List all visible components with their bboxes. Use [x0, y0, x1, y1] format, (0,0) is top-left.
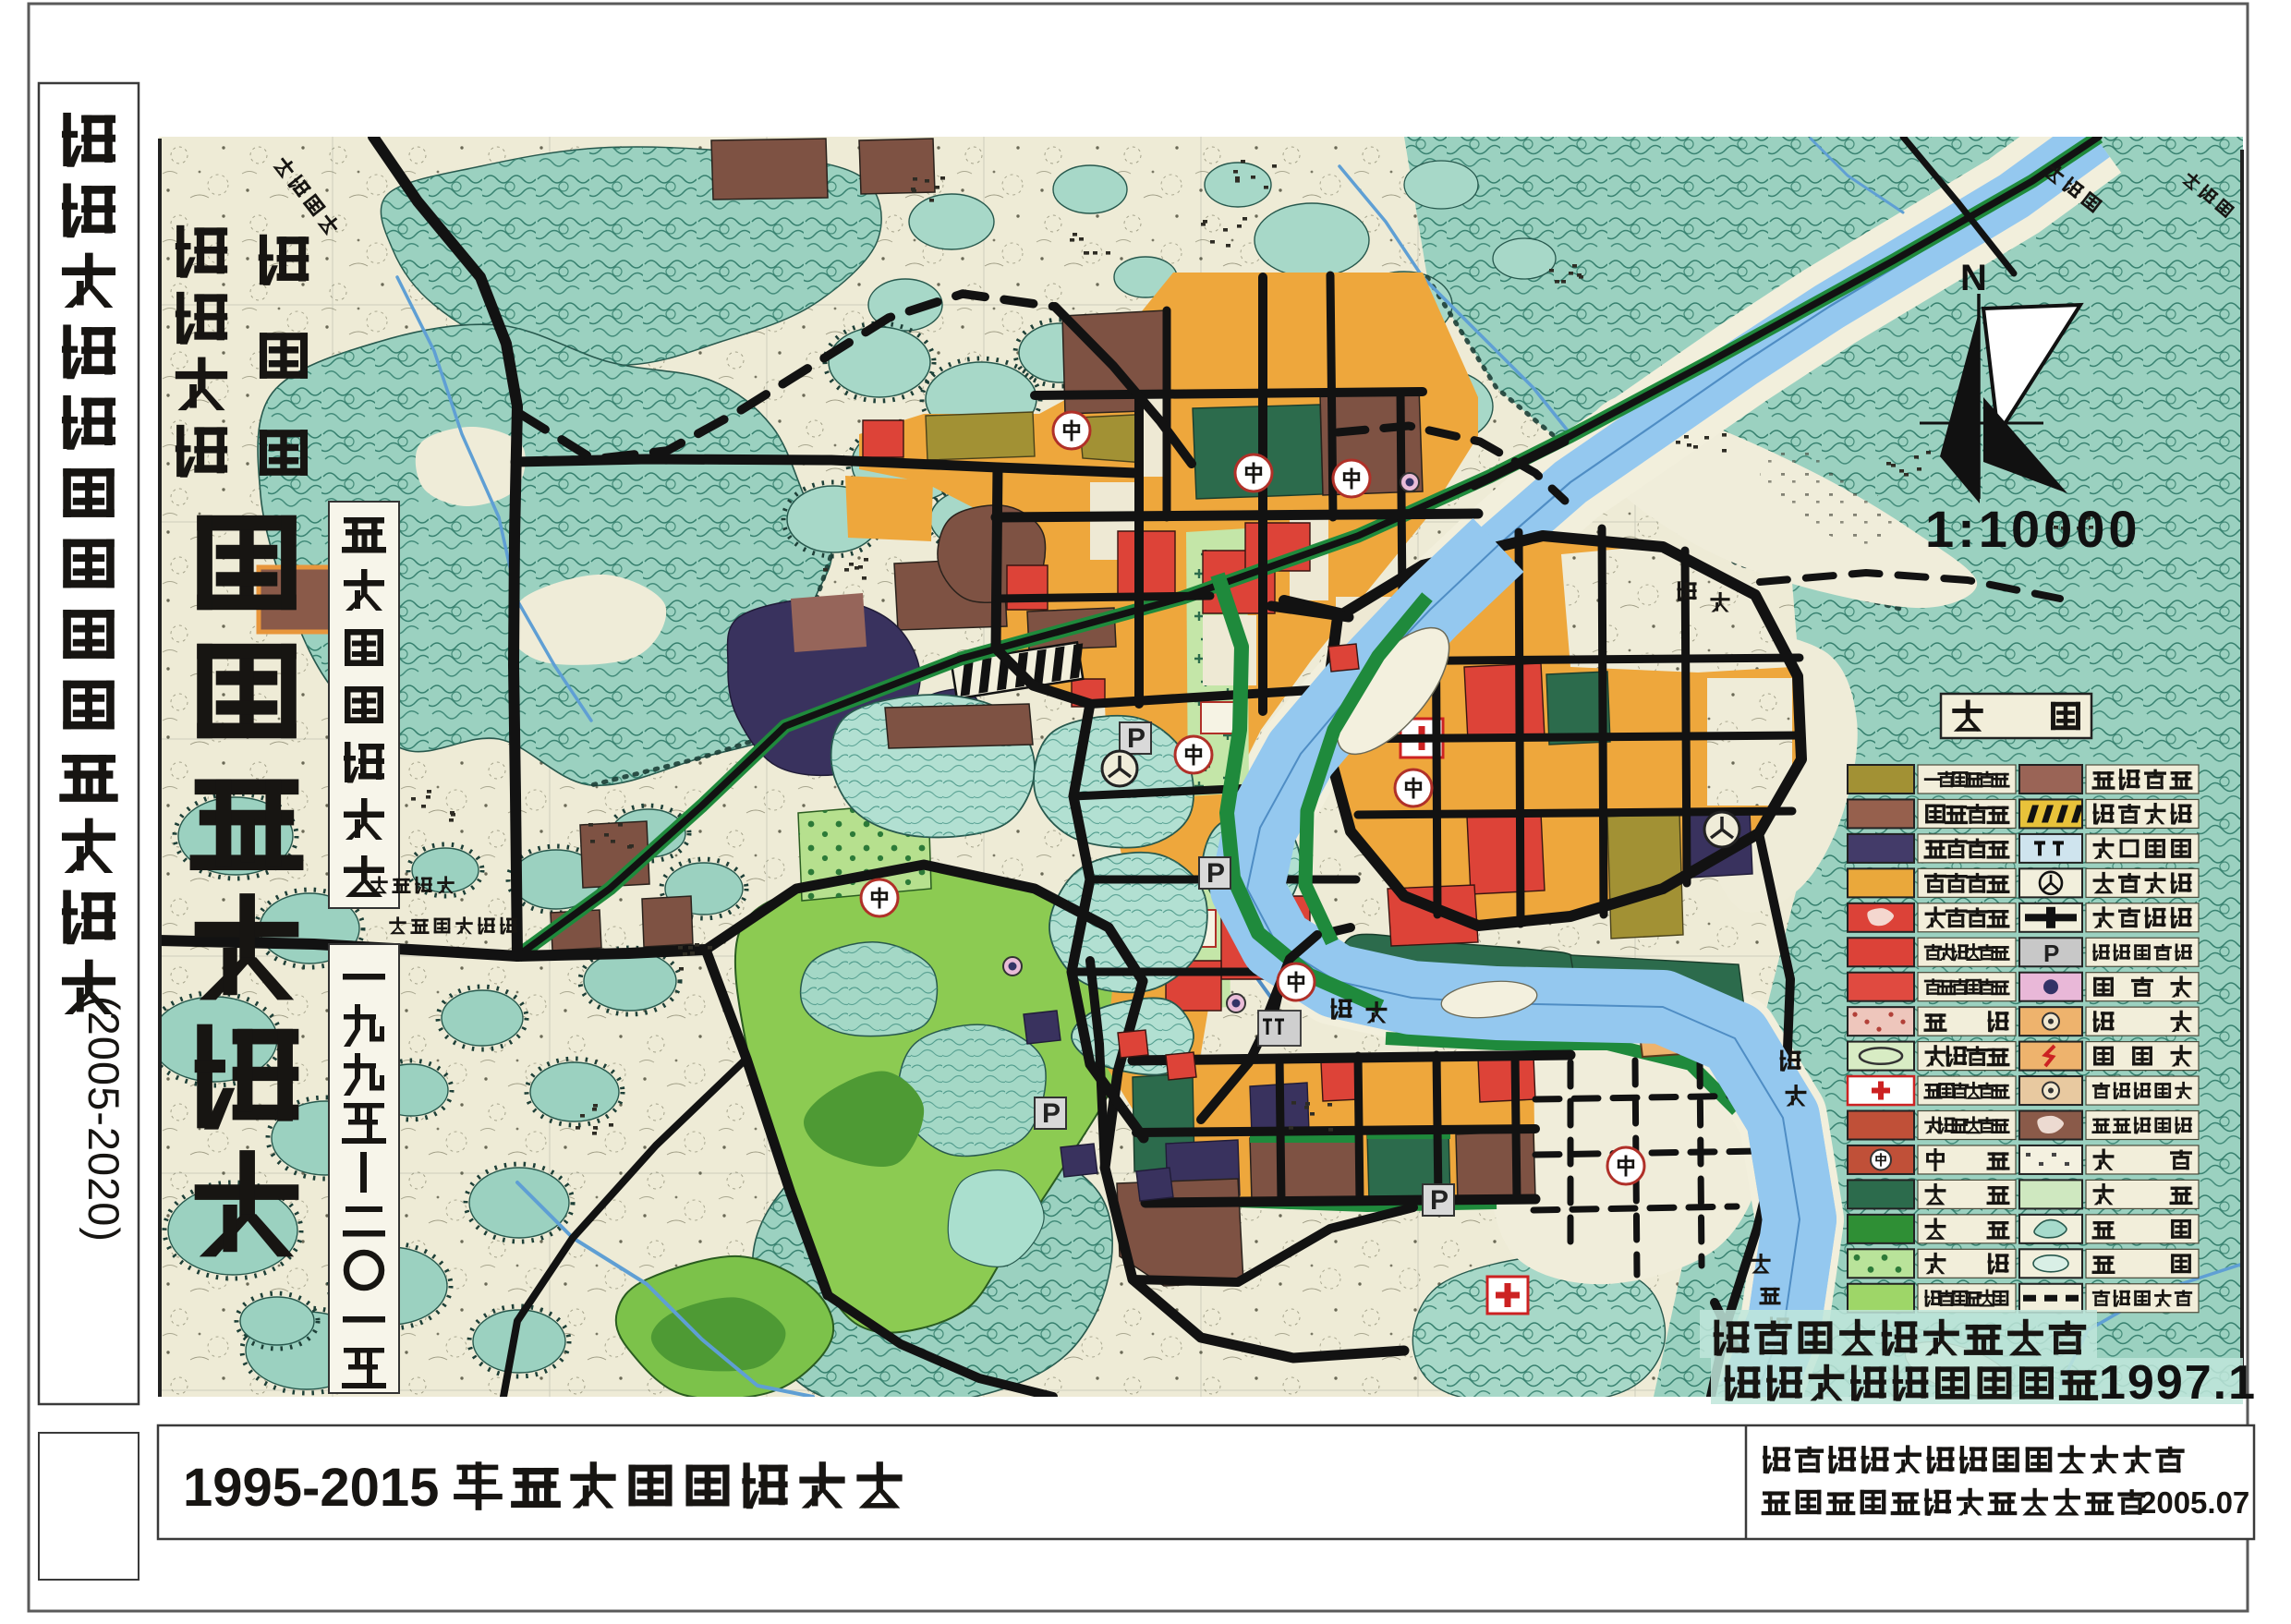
svg-text:2005.07: 2005.07 — [2139, 1485, 2249, 1520]
svg-text:1997.1: 1997.1 — [2099, 1356, 2257, 1410]
svg-text:(2005-2020): (2005-2020) — [79, 996, 128, 1242]
svg-text:P: P — [1127, 723, 1145, 754]
svg-text:P: P — [1042, 1098, 1061, 1129]
svg-text:N: N — [1960, 258, 1987, 298]
svg-text:1995-2015: 1995-2015 — [183, 1458, 439, 1518]
svg-text:P: P — [1430, 1185, 1449, 1216]
svg-text:1:10000: 1:10000 — [1925, 500, 2141, 558]
svg-text:P: P — [1206, 858, 1225, 889]
svg-text:P: P — [2043, 939, 2059, 967]
